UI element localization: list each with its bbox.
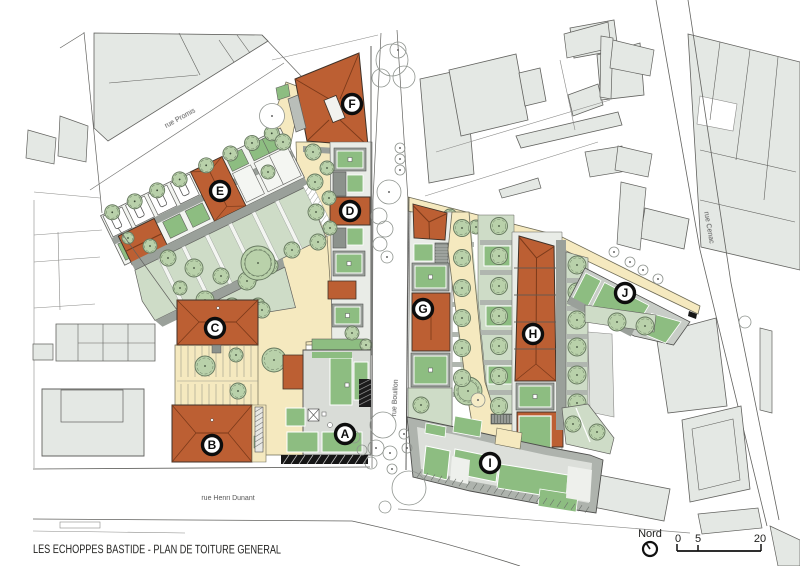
svg-text:E: E [216, 184, 224, 198]
svg-text:20: 20 [754, 533, 766, 545]
svg-text:F: F [348, 97, 355, 111]
svg-text:J: J [622, 286, 629, 300]
svg-text:LES ECHOPPES BASTIDE - PLAN DE: LES ECHOPPES BASTIDE - PLAN DE TOITURE G… [33, 544, 282, 557]
svg-text:I: I [488, 456, 491, 470]
svg-text:rue Henri Dunant: rue Henri Dunant [201, 495, 254, 502]
svg-text:A: A [341, 427, 350, 441]
svg-text:H: H [529, 327, 538, 341]
svg-text:C: C [211, 321, 220, 335]
svg-text:D: D [346, 204, 355, 218]
svg-text:5: 5 [695, 533, 701, 545]
svg-text:B: B [208, 438, 217, 452]
svg-text:G: G [418, 302, 427, 316]
svg-text:0: 0 [675, 533, 681, 545]
svg-text:Nord: Nord [638, 528, 662, 540]
